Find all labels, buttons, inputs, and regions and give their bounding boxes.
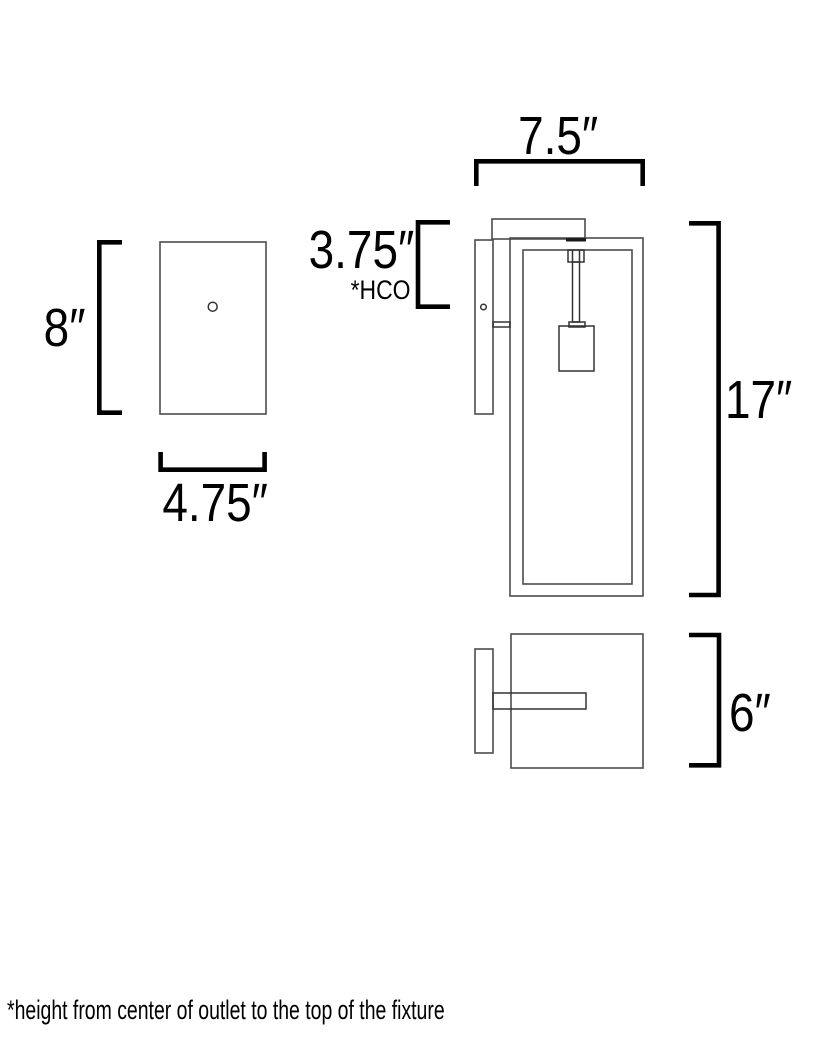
front-height-value: 8″ bbox=[44, 301, 86, 355]
stem bbox=[573, 262, 580, 322]
side-top-width-value: 7.5″ bbox=[518, 109, 598, 163]
hco-note-label: *HCO bbox=[191, 277, 411, 304]
side-top-width-label: 7.5″ bbox=[448, 109, 668, 163]
topview-frame bbox=[511, 634, 643, 768]
wall-plate-screw bbox=[481, 304, 487, 310]
candle-socket bbox=[559, 326, 594, 371]
bracket-4-75in bbox=[161, 452, 265, 470]
bracket-3-75in bbox=[418, 222, 450, 306]
front-width-value: 4.75″ bbox=[162, 476, 268, 530]
hex-nut-facets bbox=[573, 250, 580, 262]
topview-arm bbox=[493, 693, 586, 709]
top-depth-value: 6″ bbox=[729, 686, 771, 740]
footnote-text: *height from center of outlet to the top… bbox=[7, 996, 445, 1026]
side-height-value: 17″ bbox=[725, 373, 792, 427]
spec-drawing: 8″ 4.75″ 7.5″ 3.75″ *HCO 17″ 6″ *height … bbox=[0, 0, 834, 1042]
side-view bbox=[475, 219, 643, 596]
footnote: *height from center of outlet to the top… bbox=[7, 996, 615, 1026]
hco-note-value: *HCO bbox=[351, 277, 411, 304]
lantern-outer-frame bbox=[510, 238, 643, 596]
bracket-6in bbox=[689, 635, 719, 765]
lantern-inner-frame bbox=[523, 250, 632, 584]
wall-plate bbox=[475, 240, 493, 414]
front-width-label: 4.75″ bbox=[105, 476, 325, 530]
lower-arm bbox=[493, 322, 510, 327]
topview-plate bbox=[475, 649, 493, 753]
hco-dimension-value: 3.75″ bbox=[308, 223, 414, 277]
hco-dimension-label: 3.75″ bbox=[194, 223, 414, 277]
top-arm bbox=[492, 219, 585, 239]
top-view bbox=[475, 634, 643, 768]
front-height-label: 8″ bbox=[0, 301, 175, 355]
stem-hex-nut bbox=[568, 250, 584, 262]
side-height-label: 17″ bbox=[725, 373, 804, 427]
top-depth-label: 6″ bbox=[729, 686, 778, 740]
bracket-17in bbox=[689, 223, 719, 595]
